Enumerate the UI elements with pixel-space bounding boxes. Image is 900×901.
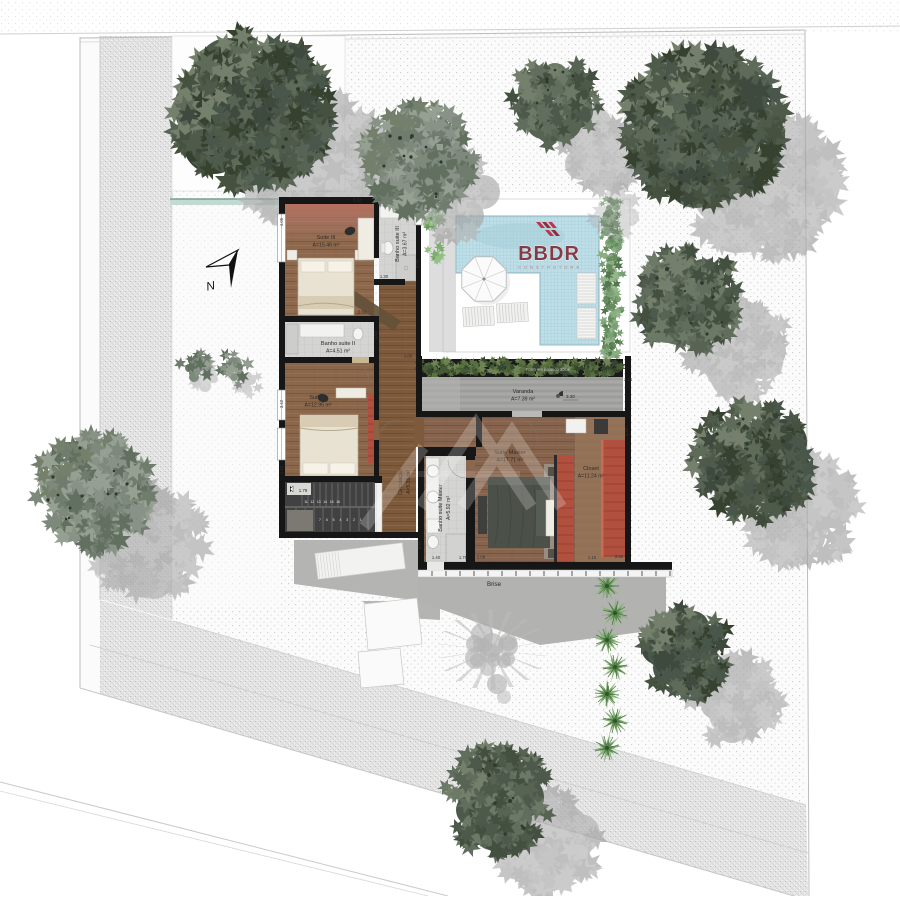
svg-text:Suite II: Suite II bbox=[309, 395, 327, 401]
svg-text:7: 7 bbox=[319, 518, 321, 522]
svg-text:4.05: 4.05 bbox=[279, 217, 284, 226]
svg-text:A=15.46 m²: A=15.46 m² bbox=[313, 243, 340, 249]
svg-text:A=5.92 m²: A=5.92 m² bbox=[446, 496, 452, 520]
svg-text:15: 15 bbox=[330, 500, 334, 504]
svg-text:16: 16 bbox=[336, 500, 340, 504]
svg-text:CONSTRUTORA: CONSTRUTORA bbox=[518, 265, 582, 270]
svg-text:7.10: 7.10 bbox=[624, 377, 633, 382]
svg-text:A=4.51 m²: A=4.51 m² bbox=[326, 349, 350, 355]
svg-text:Brise: Brise bbox=[487, 581, 502, 588]
svg-text:5.94: 5.94 bbox=[417, 540, 422, 549]
svg-text:1.79: 1.79 bbox=[299, 488, 308, 493]
svg-text:2.08: 2.08 bbox=[477, 555, 486, 560]
svg-text:5: 5 bbox=[333, 518, 335, 522]
svg-text:Forro em balanco 30cm: Forro em balanco 30cm bbox=[526, 367, 571, 372]
svg-text:3: 3 bbox=[346, 518, 348, 522]
svg-text:6: 6 bbox=[326, 518, 328, 522]
svg-text:4: 4 bbox=[339, 518, 341, 522]
svg-text:3.30: 3.30 bbox=[566, 394, 575, 399]
svg-text:Banho suite III: Banho suite III bbox=[395, 226, 401, 262]
svg-text:1.52: 1.52 bbox=[373, 330, 378, 339]
svg-text:3.12: 3.12 bbox=[353, 198, 362, 203]
svg-text:14: 14 bbox=[323, 500, 327, 504]
svg-text:1.30: 1.30 bbox=[380, 274, 389, 279]
svg-text:13: 13 bbox=[317, 500, 321, 504]
svg-text:Banho suite Master: Banho suite Master bbox=[438, 484, 444, 532]
svg-text:A=3.67 m²: A=3.67 m² bbox=[403, 232, 409, 256]
svg-text:2.05: 2.05 bbox=[415, 259, 420, 268]
svg-text:2.60: 2.60 bbox=[358, 310, 367, 315]
svg-text:Banho suite II: Banho suite II bbox=[321, 341, 356, 347]
svg-text:1.70: 1.70 bbox=[459, 555, 468, 560]
svg-text:4.40: 4.40 bbox=[624, 427, 629, 436]
svg-text:1.10: 1.10 bbox=[588, 555, 597, 560]
svg-text:11: 11 bbox=[304, 500, 308, 504]
svg-text:Varanda: Varanda bbox=[513, 389, 535, 395]
svg-text:A=12.95 m²: A=12.95 m² bbox=[305, 403, 332, 409]
svg-text:3.42: 3.42 bbox=[279, 399, 284, 408]
svg-text:12: 12 bbox=[311, 500, 315, 504]
svg-text:2.02: 2.02 bbox=[615, 554, 624, 559]
svg-text:A=7.39 m²: A=7.39 m² bbox=[511, 397, 535, 403]
svg-text:A=11.24 m²: A=11.24 m² bbox=[578, 474, 605, 480]
svg-text:Closet: Closet bbox=[583, 466, 599, 472]
svg-text:Suite III: Suite III bbox=[317, 235, 336, 241]
svg-text:1.00: 1.00 bbox=[404, 354, 413, 359]
svg-text:1.40: 1.40 bbox=[279, 465, 284, 474]
svg-text:2: 2 bbox=[353, 518, 355, 522]
svg-text:1.40: 1.40 bbox=[432, 555, 441, 560]
svg-text:BBDR: BBDR bbox=[518, 243, 580, 265]
